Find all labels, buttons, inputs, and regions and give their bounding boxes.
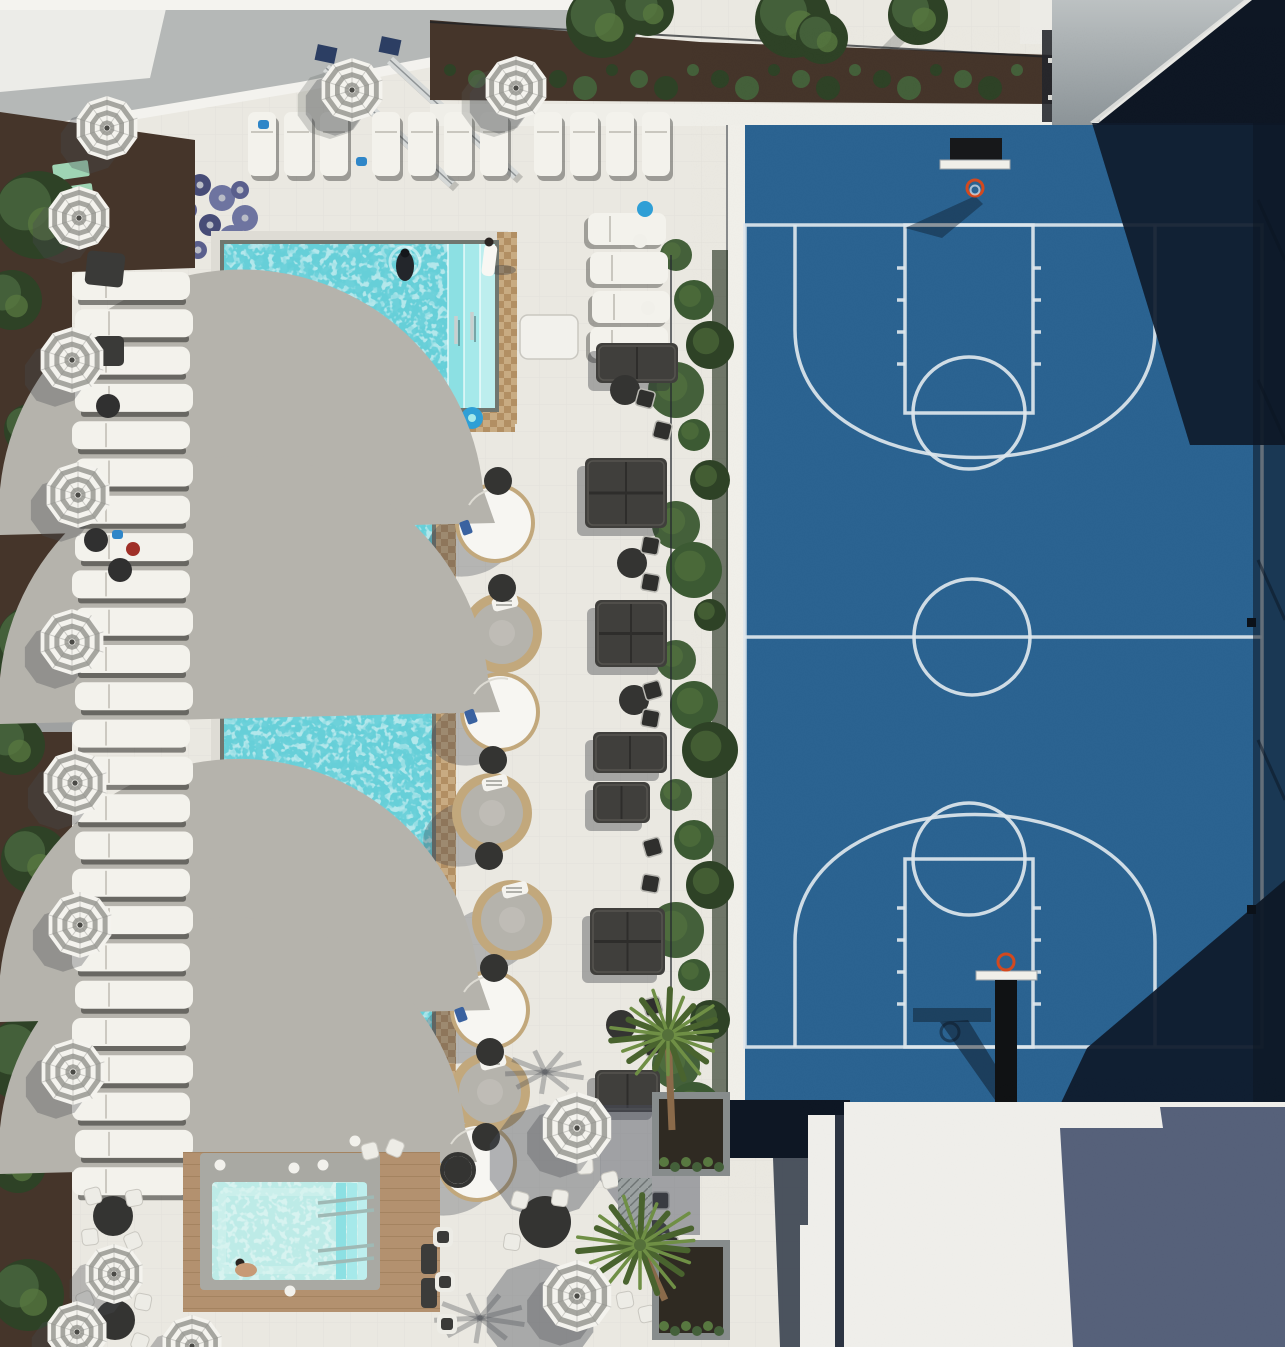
umbrella-pole <box>77 922 82 927</box>
shrub <box>654 76 678 100</box>
planter-shrub <box>692 1326 702 1336</box>
backboard <box>940 160 1010 169</box>
spa-jet-cap <box>215 1160 226 1171</box>
lounge-chair <box>588 213 666 245</box>
spa-jet-cap <box>350 1136 361 1147</box>
shrub <box>549 70 567 88</box>
shrub <box>873 70 891 88</box>
roof-top-parapet <box>0 0 575 10</box>
umbrella-pole <box>69 357 74 362</box>
bistro-table <box>606 1010 636 1040</box>
tree-canopy-highlight <box>912 8 936 32</box>
shrub <box>954 70 972 88</box>
pool-toy-hole <box>242 215 249 222</box>
lounge-chair <box>72 869 190 897</box>
umbrella-pole <box>574 1125 579 1130</box>
spa-step <box>336 1183 346 1279</box>
spa-jet-cap <box>285 1286 296 1297</box>
umbrella-pole <box>513 85 518 90</box>
round-chair <box>84 528 108 552</box>
backboard <box>976 971 1037 980</box>
shrub <box>735 76 759 100</box>
palm-crown <box>634 1239 646 1251</box>
swimmer-head <box>401 249 410 258</box>
hedge-shrub-light <box>693 868 719 894</box>
roof-strip <box>808 1115 835 1347</box>
planter-shrub <box>670 1162 680 1172</box>
daybed-center <box>489 620 515 646</box>
bistro-chair <box>641 536 661 556</box>
umbrella-pole <box>75 492 80 497</box>
lounge-chair <box>72 720 190 748</box>
roof-strip-step <box>800 1225 808 1347</box>
drink-table <box>641 301 655 315</box>
hedge-shrub-light <box>681 962 699 980</box>
fence-shadow-strip <box>1253 123 1285 1105</box>
lounge-chair <box>75 682 193 710</box>
planter-shrub <box>681 1321 691 1331</box>
daybed-center <box>479 800 505 826</box>
umbrella-pole <box>72 780 77 785</box>
red-bag <box>126 542 140 556</box>
shrub <box>630 70 648 88</box>
white-chair <box>134 1293 153 1312</box>
pool-toy-hole <box>195 247 202 254</box>
planter-shrub <box>703 1157 713 1167</box>
side-table <box>475 842 503 870</box>
shrub <box>792 70 810 88</box>
bottom-right-building-roof <box>773 1102 1285 1347</box>
planter-soil <box>659 1247 723 1333</box>
shrub <box>897 76 921 100</box>
side-table <box>444 1156 472 1184</box>
hedge-shrub-light <box>679 285 701 307</box>
bistro-chair <box>652 420 673 441</box>
roof-grain <box>844 1102 1285 1347</box>
side-table <box>484 467 512 495</box>
lounge-chair <box>408 112 436 176</box>
planter-shrub <box>681 1157 691 1167</box>
chair-cushion <box>441 1318 453 1330</box>
bistro-chair <box>641 573 661 593</box>
white-chair <box>81 1228 99 1246</box>
roof-seam <box>835 1115 844 1347</box>
shrub <box>930 64 942 76</box>
hedge-planter-shade <box>712 250 728 1120</box>
shrub <box>687 64 699 76</box>
planter-shrub <box>670 1326 680 1336</box>
hedge-shrub-light <box>693 328 719 354</box>
blue-towel <box>112 530 123 539</box>
lounge-chair <box>75 832 193 860</box>
tree-canopy-highlight <box>5 295 28 318</box>
side-table <box>480 954 508 982</box>
spa-water-texture <box>212 1182 368 1280</box>
white-chair <box>616 1291 635 1310</box>
beach-ball <box>637 201 653 217</box>
umbrella-pole <box>574 1293 579 1298</box>
hedge-shrub-light <box>697 602 715 620</box>
lounge-chair <box>372 112 400 176</box>
umbrella-pole <box>111 1271 116 1276</box>
pool-toy-hole <box>197 182 204 189</box>
shrub <box>711 70 729 88</box>
lounge-chair <box>606 112 634 176</box>
bistro-chair <box>642 680 663 701</box>
pool-float-hole <box>468 414 476 422</box>
court-side-apron <box>726 125 745 1105</box>
hedge-shrub-light <box>677 688 703 714</box>
spa-person <box>235 1263 257 1277</box>
white-chair <box>551 1189 569 1207</box>
scene-canvas <box>0 0 1285 1347</box>
lounge-chair <box>642 112 670 176</box>
umbrella-pole <box>349 87 354 92</box>
deck-lounger <box>421 1278 437 1308</box>
hedge-shrub-light <box>675 551 706 582</box>
bistro-chair <box>641 709 661 729</box>
planter-shrub <box>714 1162 724 1172</box>
lounge-chair <box>534 112 562 176</box>
shrub <box>1011 64 1023 76</box>
planter-shrub <box>703 1321 713 1331</box>
blue-towel <box>258 120 269 129</box>
shrub <box>573 76 597 100</box>
pool-toy-hole <box>219 195 226 202</box>
storage-bench <box>520 315 578 359</box>
shrub <box>978 76 1002 100</box>
hoop-pole <box>995 980 1017 1103</box>
planter-shrub <box>714 1326 724 1336</box>
white-chair <box>503 1233 521 1251</box>
planter-shrub <box>659 1157 669 1167</box>
white-chair <box>83 1186 103 1206</box>
planter-shrub <box>692 1162 702 1172</box>
tree-canopy-highlight <box>817 32 838 53</box>
umbrella-pole <box>70 1069 75 1074</box>
lounge-chair <box>75 981 193 1009</box>
bistro-chair <box>642 837 663 858</box>
daybed-center <box>477 1079 503 1105</box>
lounge-chair <box>592 291 670 323</box>
shrub <box>849 64 861 76</box>
white-chair <box>125 1189 144 1208</box>
shrub <box>768 64 780 76</box>
round-chair <box>108 558 132 582</box>
side-table <box>479 746 507 774</box>
tree-canopy-highlight <box>643 4 664 25</box>
pool-toy-hole <box>237 187 244 194</box>
tree-canopy-highlight <box>8 740 31 763</box>
white-chair <box>360 1141 379 1160</box>
hedge-shrub-light <box>679 825 701 847</box>
side-table <box>488 574 516 602</box>
bistro-chair <box>641 874 661 894</box>
person-head <box>485 238 494 247</box>
shrub <box>444 64 456 76</box>
tree-canopy-highlight <box>595 13 624 42</box>
lounge-chair <box>590 252 668 284</box>
umbrella-pole <box>76 215 81 220</box>
tree-canopy-highlight <box>20 1289 47 1316</box>
aerial-photo: aerial-photo <box>0 0 1285 1347</box>
lounge-chair <box>72 1018 190 1046</box>
pool-tile-border <box>497 232 517 424</box>
daybed-center <box>499 907 525 933</box>
lounge-chair <box>570 112 598 176</box>
hedge-shrub-light <box>681 422 699 440</box>
round-chair <box>96 394 120 418</box>
planter-shrub <box>659 1321 669 1331</box>
roof-white-corner <box>0 0 168 92</box>
chair-cushion <box>437 1231 449 1243</box>
chair-cushion <box>439 1276 451 1288</box>
fence-post <box>1247 618 1256 627</box>
backboard-shadow <box>913 1008 991 1022</box>
white-chair <box>600 1170 619 1189</box>
basketball-court <box>726 123 1285 1105</box>
spa-jet-cap <box>318 1160 329 1171</box>
umbrella-pole <box>104 125 109 130</box>
blue-towel <box>356 157 367 166</box>
umbrella-pole <box>69 639 74 644</box>
bistro-chair <box>635 388 656 409</box>
lounge-chair <box>75 384 193 412</box>
fence-post <box>1247 905 1256 914</box>
hedge-shrub-light <box>691 731 722 762</box>
pool-toy-hole <box>207 222 214 229</box>
shrub <box>606 64 618 76</box>
shrub <box>816 76 840 100</box>
lounge-chair <box>72 421 190 449</box>
hedge-shrub-light <box>695 465 717 487</box>
lounge-seat <box>84 250 125 288</box>
side-table <box>476 1038 504 1066</box>
drink-table <box>633 234 647 248</box>
lounge-chair <box>75 1130 193 1158</box>
umbrella-pole <box>74 1329 79 1334</box>
spa-jet-cap <box>289 1163 300 1174</box>
palm-crown <box>662 1029 674 1041</box>
lounge-chair <box>75 309 193 337</box>
deck-lounger <box>421 1244 437 1274</box>
